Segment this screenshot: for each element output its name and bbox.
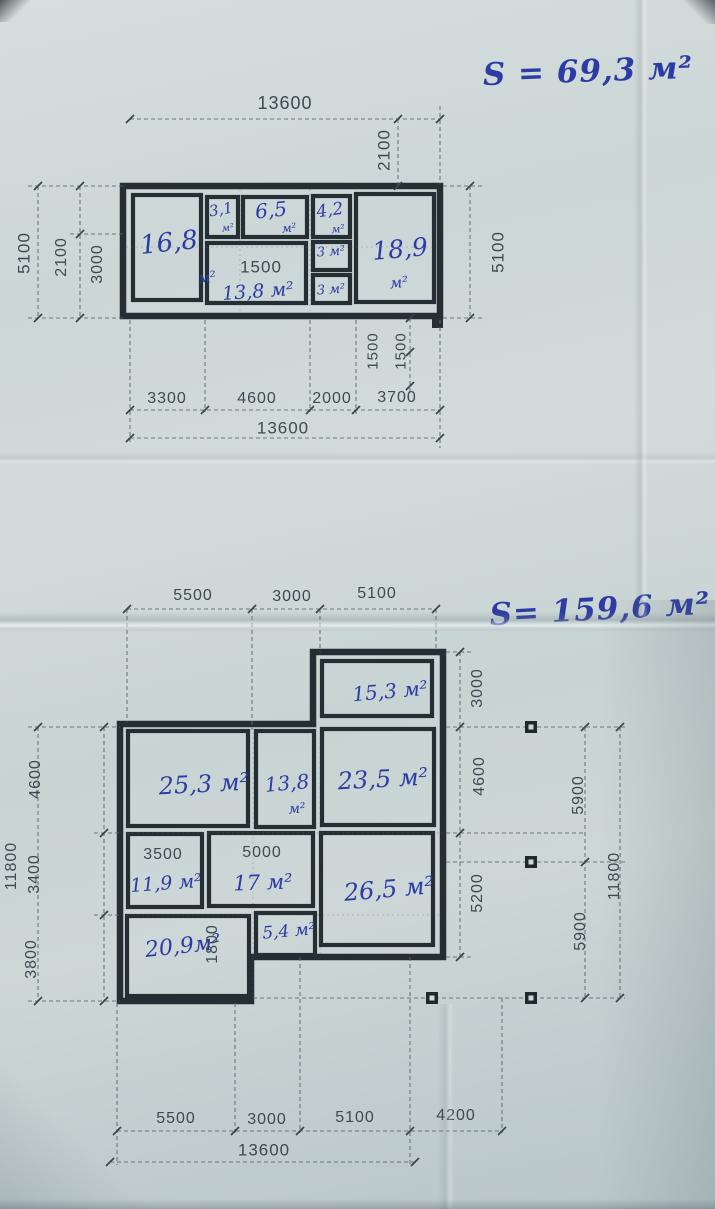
dim-top-5100: 5100 xyxy=(357,586,397,602)
dim-mid-5900-a: 5900 xyxy=(571,775,587,815)
room-area-5-4: 5,4 м² xyxy=(262,921,317,943)
plan-top-area-total: S = 69,3 м² xyxy=(482,53,693,91)
room-unit-13-8b: м² xyxy=(288,801,306,816)
room-unit-16-8: м² xyxy=(197,269,217,286)
dim-bottom-2000: 2000 xyxy=(312,391,352,407)
dim-below-1500-a: 1500 xyxy=(366,332,381,369)
dim-bot-4200: 4200 xyxy=(436,1108,476,1124)
room-unit-6-5: м² xyxy=(281,221,297,234)
room-printed-5000: 5000 xyxy=(242,845,282,861)
floor-plans-photo: S = 69,3 м² 13600 2100 5100 2100 3000 51… xyxy=(0,0,715,1209)
dim-left-3000: 3000 xyxy=(90,244,106,284)
room-area-25-3: 25,3 м² xyxy=(158,770,250,799)
dim-mid-5900-b: 5900 xyxy=(573,911,589,951)
dim-right-3000: 3000 xyxy=(470,668,486,708)
dim-bot-5100: 5100 xyxy=(335,1110,375,1126)
room-printed-3500: 3500 xyxy=(143,847,183,863)
dim-right-4600: 4600 xyxy=(472,756,488,796)
room-area-6-5: 6,5 xyxy=(254,198,288,221)
room-unit-4-2: м² xyxy=(331,223,346,235)
dim-bottom-3300: 3300 xyxy=(147,391,187,407)
dim-bot-total: 13600 xyxy=(238,1142,290,1159)
room-area-15-3: 15,3 м² xyxy=(352,678,429,705)
dim-right-11800: 11800 xyxy=(607,852,623,900)
room-area-13-8: 13,8 м² xyxy=(222,280,295,304)
room-area-3-1: 3,1 xyxy=(208,201,234,220)
room-unit-3-1: м² xyxy=(221,223,235,235)
dim-left-2100: 2100 xyxy=(54,237,70,277)
dim-bot-5500: 5500 xyxy=(156,1111,196,1127)
dim-top-5500: 5500 xyxy=(173,588,213,604)
room-area-11-9: 11,9 м² xyxy=(130,872,203,896)
room-area-18-9: 18,9 xyxy=(371,234,429,264)
dim-top-total: 13600 xyxy=(257,94,312,112)
room-area-23-5: 23,5 м² xyxy=(337,765,429,794)
dim-left-5100: 5100 xyxy=(16,232,33,274)
dim-left-4600: 4600 xyxy=(28,759,44,799)
dim-left-3800: 3800 xyxy=(24,939,40,979)
room-area-13-8b: 13,8 xyxy=(264,771,310,795)
room-area-17: 17 м² xyxy=(233,871,293,894)
room-area-3-b: 3 м² xyxy=(316,283,345,298)
dim-bot-3000: 3000 xyxy=(247,1112,287,1128)
room-area-3-a: 3 м² xyxy=(316,245,345,260)
room-unit-18-9: м² xyxy=(389,275,409,292)
dim-bottom-3700: 3700 xyxy=(377,390,417,406)
room-area-16-8: 16,8 xyxy=(139,227,199,259)
room-printed-1800: 1800 xyxy=(205,924,221,964)
dim-right-5100: 5100 xyxy=(490,231,507,273)
dim-below-1500-b: 1500 xyxy=(394,332,409,369)
dim-left-3400: 3400 xyxy=(27,854,43,894)
dim-2100-vertical: 2100 xyxy=(376,129,393,171)
dim-top-3000: 3000 xyxy=(272,589,312,605)
room-area-26-5: 26,5 м² xyxy=(343,873,435,905)
room-area-4-2: 4,2 xyxy=(315,201,344,222)
dim-bottom-4600: 4600 xyxy=(237,391,277,407)
room-printed-1500: 1500 xyxy=(240,259,282,276)
dim-left-11800: 11800 xyxy=(4,842,20,890)
dim-right-5200: 5200 xyxy=(470,873,486,913)
dim-bottom-total: 13600 xyxy=(257,420,309,437)
